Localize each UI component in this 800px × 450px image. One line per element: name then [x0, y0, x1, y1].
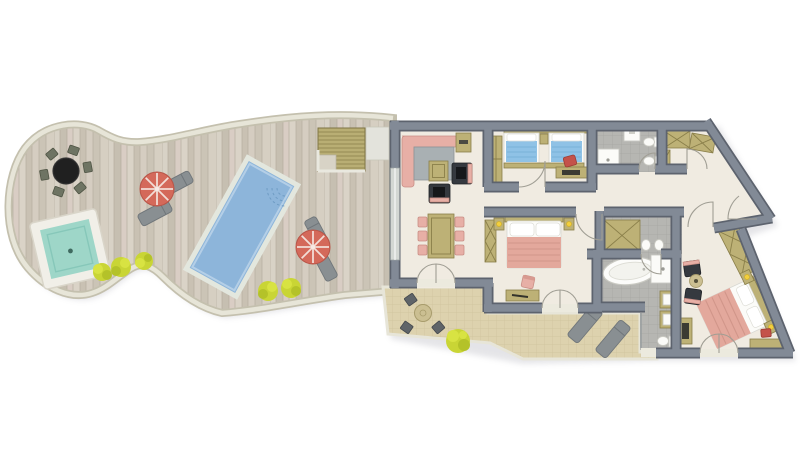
parasol: [296, 230, 330, 264]
lamp: [497, 222, 502, 227]
dining-chair: [455, 231, 464, 241]
side-cabinet-slot: [459, 140, 468, 144]
nightstand: [540, 134, 548, 144]
floor-plan-stage: [0, 0, 800, 450]
pergola-side-panel: [366, 127, 389, 160]
dining-chair: [418, 217, 427, 227]
desk-accessory: [562, 170, 580, 175]
wardrobe-unit: [664, 131, 690, 148]
armchair-cushion: [468, 164, 472, 183]
bistro-table: [415, 305, 432, 322]
bathroom-terrace-threshold: [641, 348, 656, 357]
wardrobe-unit: [604, 220, 640, 251]
pool-deck: [8, 115, 393, 313]
armchair-cushion: [430, 198, 449, 202]
armchair: [452, 163, 472, 184]
dining-set: [418, 214, 464, 258]
pillow: [510, 223, 534, 236]
dining-chair: [455, 217, 464, 227]
console-chair: [761, 329, 772, 338]
bed-blanket: [507, 237, 561, 268]
floor-plan-rendering: [0, 0, 800, 450]
deck-chair: [40, 169, 50, 180]
dining-chair: [418, 231, 427, 241]
dining-chair: [455, 245, 464, 255]
nightstand: [564, 218, 574, 230]
deck-chair: [83, 162, 93, 173]
dining-chair: [418, 245, 427, 255]
shower-drain: [661, 267, 664, 270]
lamp: [567, 222, 572, 227]
pillow: [507, 134, 536, 141]
pillow: [552, 134, 581, 141]
coffee-table: [429, 161, 448, 181]
wall-basin: [642, 240, 651, 251]
parasol: [140, 172, 174, 206]
twin-bed: [504, 133, 539, 163]
shower-drain: [606, 158, 609, 161]
armchair: [429, 184, 450, 203]
terrace-shrub: [446, 329, 470, 353]
nightstand: [494, 218, 504, 230]
pillow: [536, 223, 560, 236]
pergola-floor-mat: [319, 155, 336, 170]
